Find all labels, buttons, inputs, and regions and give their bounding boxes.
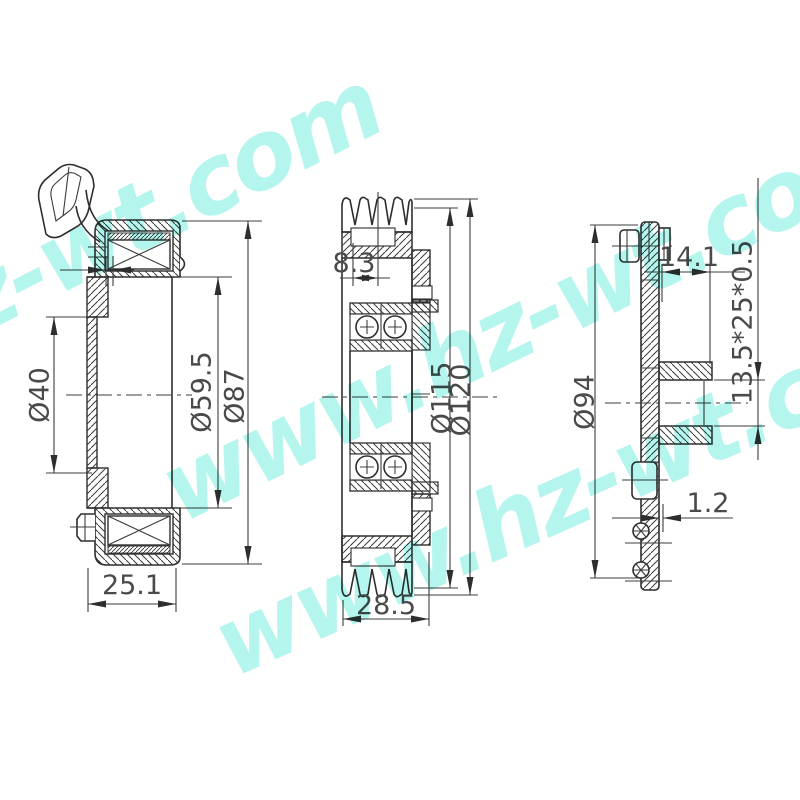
dim-label-d40: Ø40 [25, 367, 56, 423]
coil-housing-bottom [70, 508, 180, 565]
dim-label-28-5: 28.5 [356, 590, 416, 621]
belt-grooves-top [342, 197, 412, 232]
dim-label-d94: Ø94 [570, 374, 601, 430]
coil-housing-top [88, 220, 185, 277]
dim-d94: Ø94 [570, 225, 639, 578]
plate-side-view: Ø94 14.1 13.5*25*0.5 1.2 [570, 178, 766, 590]
dim-label-25-1: 25.1 [102, 570, 162, 601]
pulley-section-view: 8.3 Ø115 Ø120 28.5 [322, 192, 500, 626]
coil-side-view: Ø40 Ø59.5 Ø87 25.1 [25, 165, 263, 613]
dim-label-d87: Ø87 [220, 368, 251, 424]
dim-label-spec: 13.5*25*0.5 [728, 240, 759, 404]
dim-width-25-1: 25.1 [88, 568, 176, 612]
drawing-canvas: Ø40 Ø59.5 Ø87 25.1 [0, 0, 800, 800]
bearing-top [350, 303, 412, 351]
dim-label-8-3: 8.3 [333, 248, 376, 279]
dim-label-14-1: 14.1 [659, 242, 719, 273]
rivet-1 [633, 523, 649, 539]
bearing-bottom [350, 443, 412, 491]
rivet-2 [633, 562, 649, 578]
dim-label-1-2: 1.2 [687, 488, 730, 519]
dim-label-d59-5: Ø59.5 [187, 351, 218, 432]
dim-gap-1-2: 1.2 [612, 488, 733, 532]
dim-label-d120: Ø120 [446, 364, 477, 437]
coil-sleeve [87, 277, 172, 508]
dim-spec-13-5-25-0-5: 13.5*25*0.5 [714, 178, 765, 460]
technical-drawing: Ø40 Ø59.5 Ø87 25.1 [0, 0, 800, 800]
